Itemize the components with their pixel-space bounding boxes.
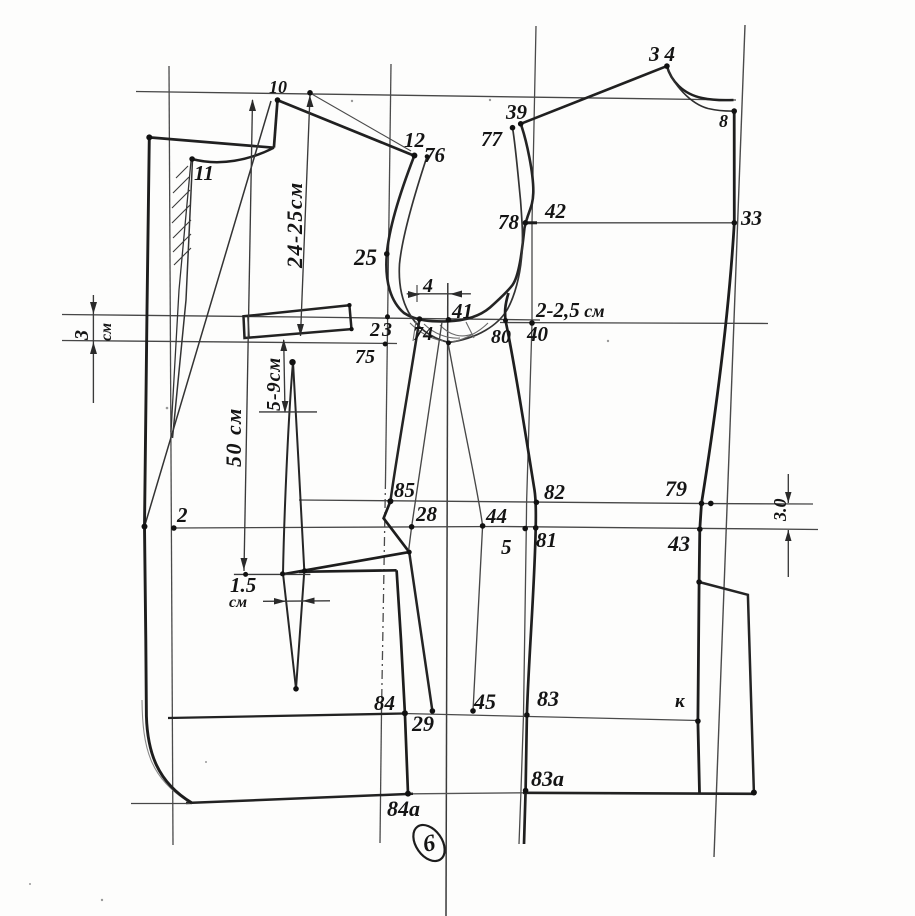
svg-text:33: 33 bbox=[740, 206, 762, 230]
svg-text:78: 78 bbox=[498, 210, 520, 234]
svg-text:11: 11 bbox=[194, 161, 214, 185]
svg-text:25: 25 bbox=[353, 245, 377, 270]
svg-text:76: 76 bbox=[424, 143, 446, 167]
svg-text:28: 28 bbox=[415, 502, 438, 526]
svg-text:75: 75 bbox=[355, 346, 375, 368]
svg-text:79: 79 bbox=[665, 476, 687, 501]
svg-text:2: 2 bbox=[176, 503, 188, 527]
svg-text:3: 3 bbox=[71, 330, 93, 341]
svg-text:85: 85 bbox=[394, 478, 415, 502]
svg-text:23: 23 bbox=[369, 319, 394, 341]
svg-text:см: см bbox=[98, 323, 115, 341]
svg-text:83: 83 bbox=[537, 686, 559, 711]
svg-text:29: 29 bbox=[411, 711, 434, 736]
svg-text:к: к bbox=[675, 691, 686, 712]
svg-text:83a: 83a bbox=[531, 766, 564, 791]
svg-text:2-2,5 см: 2-2,5 см bbox=[535, 298, 605, 322]
svg-text:84a: 84a bbox=[387, 796, 420, 821]
svg-text:5: 5 bbox=[501, 535, 512, 559]
svg-text:50 см: 50 см bbox=[221, 407, 246, 467]
svg-text:4: 4 bbox=[422, 275, 433, 297]
svg-text:34: 34 bbox=[648, 42, 680, 66]
svg-text:43: 43 bbox=[667, 531, 690, 556]
svg-text:3.0: 3.0 bbox=[770, 499, 790, 523]
svg-text:77: 77 bbox=[481, 127, 504, 151]
svg-text:24-25см: 24-25см bbox=[282, 181, 307, 269]
svg-text:81: 81 bbox=[536, 528, 557, 552]
svg-text:84: 84 bbox=[374, 691, 395, 715]
svg-text:см: см bbox=[229, 594, 247, 611]
svg-text:41: 41 bbox=[451, 299, 473, 323]
svg-text:74: 74 bbox=[413, 323, 433, 345]
svg-text:80: 80 bbox=[491, 326, 511, 348]
svg-text:8: 8 bbox=[719, 111, 728, 131]
svg-text:5-9см: 5-9см bbox=[263, 357, 285, 411]
svg-text:42: 42 bbox=[544, 199, 567, 223]
svg-text:82: 82 bbox=[544, 480, 566, 504]
svg-text:12: 12 bbox=[404, 128, 426, 152]
svg-text:45: 45 bbox=[473, 689, 496, 714]
svg-text:40: 40 bbox=[526, 322, 549, 346]
svg-text:10: 10 bbox=[269, 77, 287, 97]
svg-text:39: 39 bbox=[505, 100, 528, 124]
svg-text:44: 44 bbox=[485, 504, 507, 528]
